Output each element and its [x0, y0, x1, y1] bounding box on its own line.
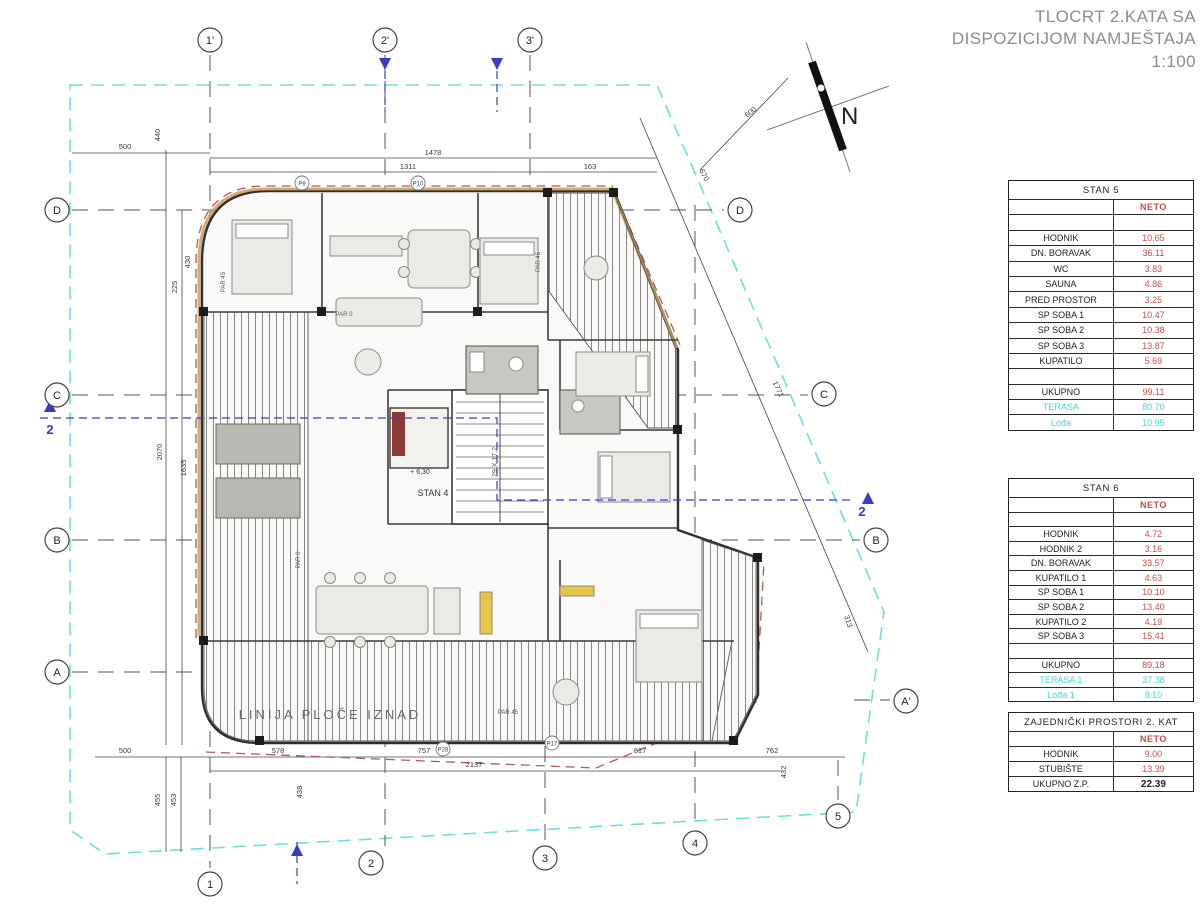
row-label: UKUPNO — [1009, 384, 1114, 399]
dimension-label: 2137 — [466, 760, 483, 769]
plan-text: PAR 45 — [498, 710, 519, 716]
table-title: ZAJEDNIČKI PROSTORI 2. KAT — [1009, 713, 1193, 731]
dimension-label: 817 — [634, 746, 647, 755]
building — [199, 188, 762, 745]
row-label: KUPATILO 2 — [1009, 614, 1114, 629]
table-row — [1009, 512, 1193, 527]
axis-label: D — [53, 205, 61, 217]
row-value: 5.69 — [1114, 353, 1193, 368]
title-line-1: TLOCRT 2.KATA SA — [952, 6, 1196, 28]
row-value: 37.38 — [1114, 672, 1193, 687]
title-scale: 1:100 — [952, 51, 1196, 73]
row-label: KUPATILO — [1009, 353, 1114, 368]
row-label: SP SOBA 1 — [1009, 585, 1114, 600]
section-2-label-right: 2 — [858, 504, 865, 519]
table-row: TERASA 137.38 — [1009, 672, 1193, 687]
row-label: KUPATILO 1 — [1009, 570, 1114, 585]
table-row: DN. BORAVAK36.11 — [1009, 245, 1193, 260]
table-title: STAN 5 — [1009, 181, 1193, 199]
position-mark-label: P28 — [438, 748, 449, 754]
row-value: 3.25 — [1114, 291, 1193, 306]
row-value: 9.00 — [1114, 746, 1193, 761]
dimension-label: 1478 — [425, 148, 442, 157]
table-row — [1009, 643, 1193, 658]
table-row: UKUPNO89.18 — [1009, 658, 1193, 673]
row-label: HODNIK 2 — [1009, 541, 1114, 556]
table-row: HODNIK 23.16 — [1009, 541, 1193, 556]
row-label: DN. BORAVAK — [1009, 245, 1114, 260]
table-row: KUPATILO5.69 — [1009, 353, 1193, 368]
row-label: SP SOBA 2 — [1009, 599, 1114, 614]
row-value — [1114, 643, 1193, 658]
title-block: TLOCRT 2.KATA SA DISPOZICIJOM NAMJEŠTAJA… — [952, 6, 1196, 73]
row-label — [1009, 643, 1114, 658]
stan4-label: STAN 4 — [418, 488, 449, 498]
title-line-2: DISPOZICIJOM NAMJEŠTAJA — [952, 28, 1196, 50]
row-value: 15.41 — [1114, 628, 1193, 643]
row-value: 10.65 — [1114, 230, 1193, 245]
dimension-label: 1771 — [771, 379, 786, 398]
dimension-label: 500 — [119, 746, 132, 755]
row-value: NETO — [1114, 731, 1193, 746]
axis-label: 1' — [206, 35, 214, 47]
row-label — [1009, 512, 1114, 527]
table-row: NETO — [1009, 497, 1193, 512]
row-label: SP SOBA 2 — [1009, 322, 1114, 337]
row-value: 13.40 — [1114, 599, 1193, 614]
bathroom-2 — [560, 390, 620, 434]
dimension-label: 762 — [766, 746, 779, 755]
table-row: SP SOBA 110.10 — [1009, 585, 1193, 600]
row-value: 99.11 — [1114, 384, 1193, 399]
axis-label: D — [736, 205, 744, 217]
table-row: Lođa10.95 — [1009, 414, 1193, 429]
axis-label: 2 — [368, 858, 374, 870]
row-value: 33.57 — [1114, 555, 1193, 570]
dimension-label: 1311 — [400, 162, 416, 171]
table-row: KUPATILO 14.63 — [1009, 570, 1193, 585]
table-row: HODNIK10.65 — [1009, 230, 1193, 245]
table-body: NETOHODNIK9.00STUBIŠTE13.39UKUPNO Z.P.22… — [1009, 731, 1193, 791]
row-label: TERASA — [1009, 399, 1114, 414]
table-row: PRED PROSTOR3.25 — [1009, 291, 1193, 306]
row-label — [1009, 731, 1114, 746]
table-body: NETOHODNIK4.72HODNIK 23.16DN. BORAVAK33.… — [1009, 497, 1193, 701]
row-value: 10.10 — [1114, 585, 1193, 600]
row-label: DN. BORAVAK — [1009, 555, 1114, 570]
table-body: NETOHODNIK10.65DN. BORAVAK36.11WC3.83SAU… — [1009, 199, 1193, 430]
table-row: SAUNA4.86 — [1009, 276, 1193, 291]
table-row: KUPATILO 24.19 — [1009, 614, 1193, 629]
axis-label: 5 — [835, 811, 841, 823]
row-label: SP SOBA 3 — [1009, 338, 1114, 353]
row-label: SAUNA — [1009, 276, 1114, 291]
dimension-label: 1635 — [179, 460, 188, 477]
axis-label: 1 — [207, 879, 213, 891]
dimension-label: 430 — [183, 256, 192, 269]
table-row: TERASA80.70 — [1009, 399, 1193, 414]
floor-plan-drawing: N 14781311163500440430225207016355004554… — [0, 0, 960, 910]
row-label — [1009, 214, 1114, 229]
row-value: NETO — [1114, 199, 1193, 214]
row-value: 13.39 — [1114, 761, 1193, 776]
row-value: 89.18 — [1114, 658, 1193, 673]
table-row: HODNIK4.72 — [1009, 526, 1193, 541]
row-value: 4.86 — [1114, 276, 1193, 291]
row-value: 4.72 — [1114, 526, 1193, 541]
row-label: Lođa 1 — [1009, 687, 1114, 702]
plan-text: PAR 45 — [536, 251, 542, 272]
dimension-label: 500 — [119, 142, 132, 151]
row-label: SP SOBA 3 — [1009, 628, 1114, 643]
table-row — [1009, 368, 1193, 383]
table-stan-6: STAN 6 NETOHODNIK4.72HODNIK 23.16DN. BOR… — [1008, 478, 1194, 702]
row-value: 80.70 — [1114, 399, 1193, 414]
position-mark-label: P10 — [413, 182, 424, 188]
dimension-label: 578 — [272, 746, 285, 755]
position-mark-label: P9 — [298, 182, 306, 188]
row-value: 22.39 — [1114, 776, 1193, 791]
axis-label: A — [53, 667, 61, 679]
row-label: HODNIK — [1009, 526, 1114, 541]
row-label: STUBIŠTE — [1009, 761, 1114, 776]
position-mark-label: P17 — [547, 742, 558, 748]
axis-label: 3' — [526, 35, 534, 47]
slab-line-note: LINIJA PLOČE IZNAD — [239, 707, 422, 722]
table-row: SP SOBA 213.40 — [1009, 599, 1193, 614]
dimension-label: 438 — [295, 786, 304, 799]
table-common-areas: ZAJEDNIČKI PROSTORI 2. KAT NETOHODNIK9.0… — [1008, 712, 1194, 792]
table-row: SP SOBA 110.47 — [1009, 307, 1193, 322]
row-value: 8.10 — [1114, 687, 1193, 702]
row-label: HODNIK — [1009, 230, 1114, 245]
table-title: STAN 6 — [1009, 479, 1193, 497]
row-label: HODNIK — [1009, 746, 1114, 761]
row-label: UKUPNO — [1009, 658, 1114, 673]
row-label: TERASA 1 — [1009, 672, 1114, 687]
row-value: NETO — [1114, 497, 1193, 512]
row-label: WC — [1009, 261, 1114, 276]
table-row: NETO — [1009, 199, 1193, 214]
row-value — [1114, 512, 1193, 527]
axis-label: 3 — [542, 853, 548, 865]
floorplan-sheet: { "title": { "line1": "TLOCRT 2.KATA SA"… — [0, 0, 1200, 910]
row-value: 10.47 — [1114, 307, 1193, 322]
row-label: UKUPNO Z.P. — [1009, 776, 1114, 791]
dimension-label: 670 — [697, 167, 711, 182]
axis-label: B — [53, 535, 60, 547]
dimension-label: 163 — [584, 162, 597, 171]
table-row: SP SOBA 313.87 — [1009, 338, 1193, 353]
row-label: PRED PROSTOR — [1009, 291, 1114, 306]
plan-text: PAR 0 — [336, 312, 354, 318]
row-value: 4.19 — [1114, 614, 1193, 629]
row-value: 4.63 — [1114, 570, 1193, 585]
table-row: SP SOBA 315.41 — [1009, 628, 1193, 643]
row-label — [1009, 368, 1114, 383]
dimension-label: 600 — [743, 105, 758, 120]
stair-riser-label: 29 X 17,2 — [492, 447, 499, 477]
row-value: 10.38 — [1114, 322, 1193, 337]
table-stan-5: STAN 5 NETOHODNIK10.65DN. BORAVAK36.11WC… — [1008, 180, 1194, 431]
table-row: WC3.83 — [1009, 261, 1193, 276]
plan-text: PAR 45 — [221, 271, 227, 292]
axis-label: A' — [901, 696, 910, 708]
row-value: 3.16 — [1114, 541, 1193, 556]
dimension-label: 225 — [170, 281, 179, 294]
dimension-label: 440 — [153, 129, 162, 142]
table-row: STUBIŠTE13.39 — [1009, 761, 1193, 776]
table-row — [1009, 214, 1193, 229]
dimension-label: 455 — [153, 794, 162, 807]
north-label: N — [841, 103, 858, 130]
row-label — [1009, 497, 1114, 512]
row-value: 13.87 — [1114, 338, 1193, 353]
table-row: DN. BORAVAK33.57 — [1009, 555, 1193, 570]
plan-text: PAR 0 — [296, 551, 302, 569]
axis-label: C — [820, 389, 828, 401]
north-compass: N — [767, 42, 889, 172]
dimension-label: 2070 — [155, 444, 164, 461]
dimension-label: 453 — [169, 794, 178, 807]
row-label: SP SOBA 1 — [1009, 307, 1114, 322]
table-row: SP SOBA 210.38 — [1009, 322, 1193, 337]
row-label: Lođa — [1009, 414, 1114, 429]
level-label: + 6,30 — [410, 469, 430, 476]
table-row: HODNIK9.00 — [1009, 746, 1193, 761]
table-row: UKUPNO Z.P.22.39 — [1009, 776, 1193, 791]
table-row: NETO — [1009, 731, 1193, 746]
axis-label: C — [53, 390, 61, 402]
row-value: 10.95 — [1114, 414, 1193, 429]
axis-label: 2' — [381, 35, 389, 47]
dimension-label: 757 — [418, 746, 431, 755]
row-label — [1009, 199, 1114, 214]
row-value: 36.11 — [1114, 245, 1193, 260]
row-value — [1114, 214, 1193, 229]
row-value — [1114, 368, 1193, 383]
axis-label: 4 — [692, 838, 698, 850]
table-row: Lođa 18.10 — [1009, 687, 1193, 702]
staircase — [452, 390, 548, 524]
table-row: UKUPNO99.11 — [1009, 384, 1193, 399]
row-value: 3.83 — [1114, 261, 1193, 276]
dimension-label: 432 — [779, 766, 788, 779]
section-2-label-left: 2 — [46, 422, 53, 437]
axis-label: B — [872, 535, 879, 547]
